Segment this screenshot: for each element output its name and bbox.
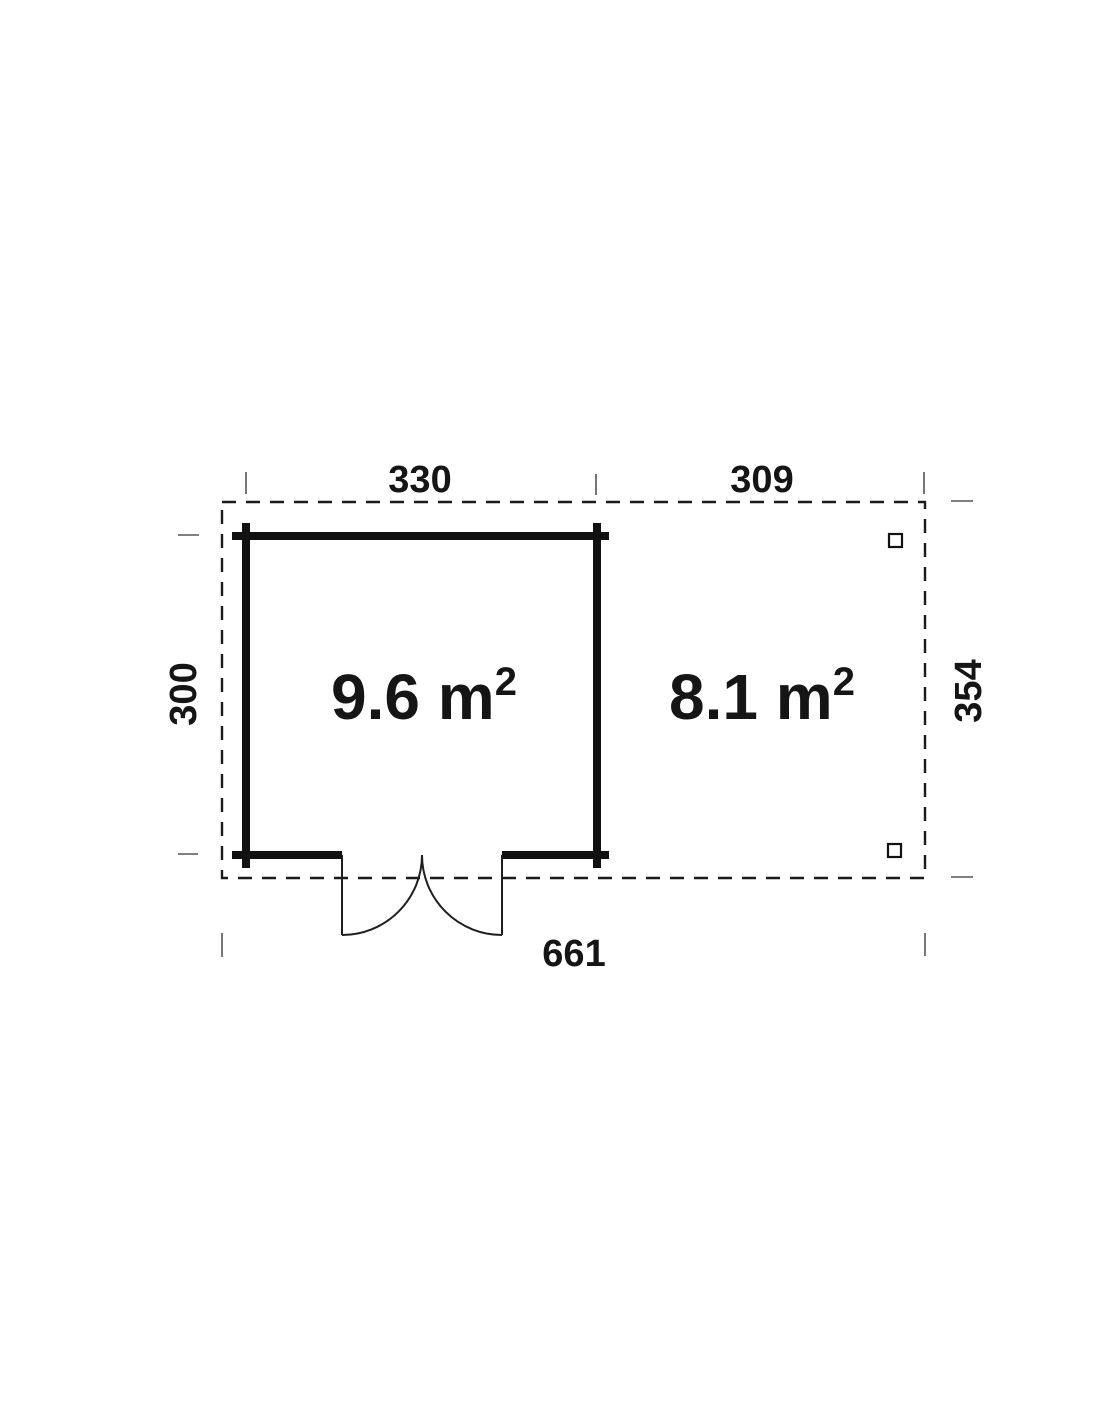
floor-plan: 330 309 300 354 661 9.6 m2 8.1 m2 <box>0 0 1100 1422</box>
dimension-label-661: 661 <box>542 933 605 975</box>
terrace-area-label: 8.1 m2 <box>669 660 855 733</box>
door-swing-arc-left <box>342 855 422 935</box>
door-swing-arc-right <box>422 855 502 935</box>
cabin-area-value: 9.6 m <box>331 661 495 733</box>
terrace-area-value: 8.1 m <box>669 661 833 733</box>
dimension-label-300: 300 <box>163 662 205 725</box>
double-door <box>342 855 502 935</box>
terrace-post-top <box>889 534 902 547</box>
dimension-label-330: 330 <box>388 459 451 501</box>
dimension-label-354: 354 <box>948 659 990 722</box>
terrace-area-exponent: 2 <box>833 660 855 704</box>
terrace-posts <box>888 534 902 857</box>
cabin-area-exponent: 2 <box>495 660 517 704</box>
dimension-ticks <box>178 472 973 957</box>
terrace-post-bottom <box>888 844 901 857</box>
cabin-area-label: 9.6 m2 <box>331 660 517 733</box>
dimension-label-309: 309 <box>730 459 793 501</box>
